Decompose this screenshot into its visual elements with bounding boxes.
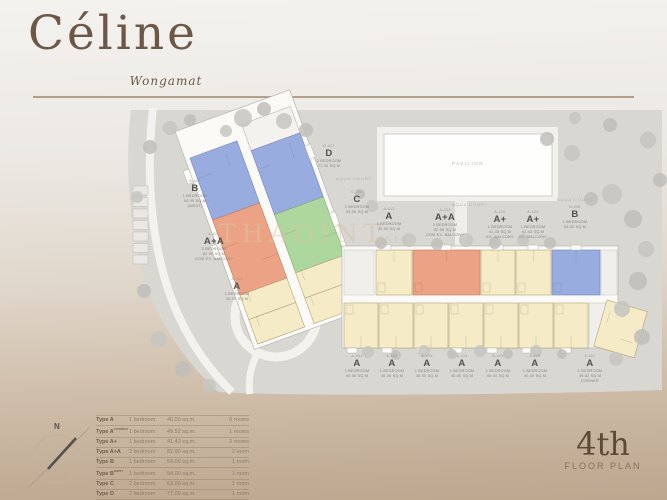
legend-row: Type A1 bedroom40.00 sq.m.8 rooms: [96, 415, 249, 426]
stair-core: [601, 250, 617, 295]
tree: [603, 118, 617, 132]
tree: [234, 109, 252, 127]
tree: [564, 145, 580, 161]
tree: [131, 191, 143, 203]
stair-core: [344, 250, 374, 295]
horizontal-wing: [342, 245, 647, 358]
tree: [614, 301, 630, 317]
pavilion-label: PAVILION: [384, 161, 552, 166]
tree: [640, 132, 656, 148]
tree: [184, 114, 196, 126]
aqua-court-label: AQUA COURT: [319, 176, 389, 181]
aqua-court-label: AQUA COURT: [540, 197, 610, 202]
compass-needle: [48, 438, 76, 469]
page: Céline Wongamat: [0, 0, 667, 500]
tree: [299, 123, 313, 137]
tree: [634, 329, 650, 345]
compass: N: [24, 418, 96, 500]
compass-north-label: N: [54, 422, 60, 431]
tree: [276, 113, 292, 129]
unit-label-A-412: A-412A1 BEDROOM40.00 SQ.M: [357, 207, 421, 232]
legend-row: Type B1 bedroom54.00 sq.m.1 room: [96, 458, 249, 468]
legend-row: Type ACORNER1 bedroom49.52 sq.m.1 rooms: [96, 426, 249, 438]
aqua-court-label: AQUA COURT: [435, 202, 505, 207]
tree: [629, 272, 647, 290]
floor-mark: 4th FLOOR PLAN: [555, 428, 651, 471]
legend-row: Type D2 bedroom77.00 sq.m.1 room: [96, 490, 249, 500]
unit-label-A-407: A-407A1 BEDROOM49.52 SQ.MCORNER: [558, 354, 622, 384]
tree: [220, 125, 232, 137]
tree: [175, 361, 191, 377]
floor-label: FLOOR PLAN: [555, 461, 651, 471]
tree: [624, 210, 642, 228]
unit-label-B-408: B-408B1 BEDROOM54.00 SQ.M: [543, 205, 607, 230]
unit-label-A-414: A-414A+A2 BEDROOM82.90 SQ.MCOM EX. BALCO…: [182, 232, 246, 262]
unit-label-A-413: A-413A1 BEDROOM40.00 SQ.M: [205, 277, 269, 302]
unit-label-D-417: D-417D2 BEDROOM77.00 SQ.M: [297, 144, 361, 169]
legend-row: Type BWEST1 bedroom54.00 sq.m.1 room: [96, 468, 249, 480]
tree: [151, 331, 167, 347]
watermark: ASIA: [377, 236, 417, 246]
tree: [653, 173, 667, 187]
tree: [638, 241, 654, 257]
tree: [202, 379, 216, 393]
tree: [431, 238, 443, 250]
tree: [137, 284, 151, 298]
floor-number: 4th: [555, 428, 651, 460]
tree: [540, 132, 554, 146]
unit-type-legend: Type A1 bedroom40.00 sq.m.8 roomsType AC…: [96, 415, 249, 500]
unit-label-B-415: B-415B1 BEDROOM54.00 SQ.M(WEST): [163, 179, 227, 209]
legend-row: Type A+A2 bedroom82.90 sq.m.2 room: [96, 448, 249, 458]
tree: [163, 121, 177, 135]
tree: [143, 140, 157, 154]
tree: [257, 102, 271, 116]
tree: [569, 112, 581, 124]
legend-row: Type A+1 bedroom41.43 sq.m.2 rooms: [96, 438, 249, 448]
legend-row: Type C2 bedroom63.00 sq.m.1 room: [96, 480, 249, 490]
